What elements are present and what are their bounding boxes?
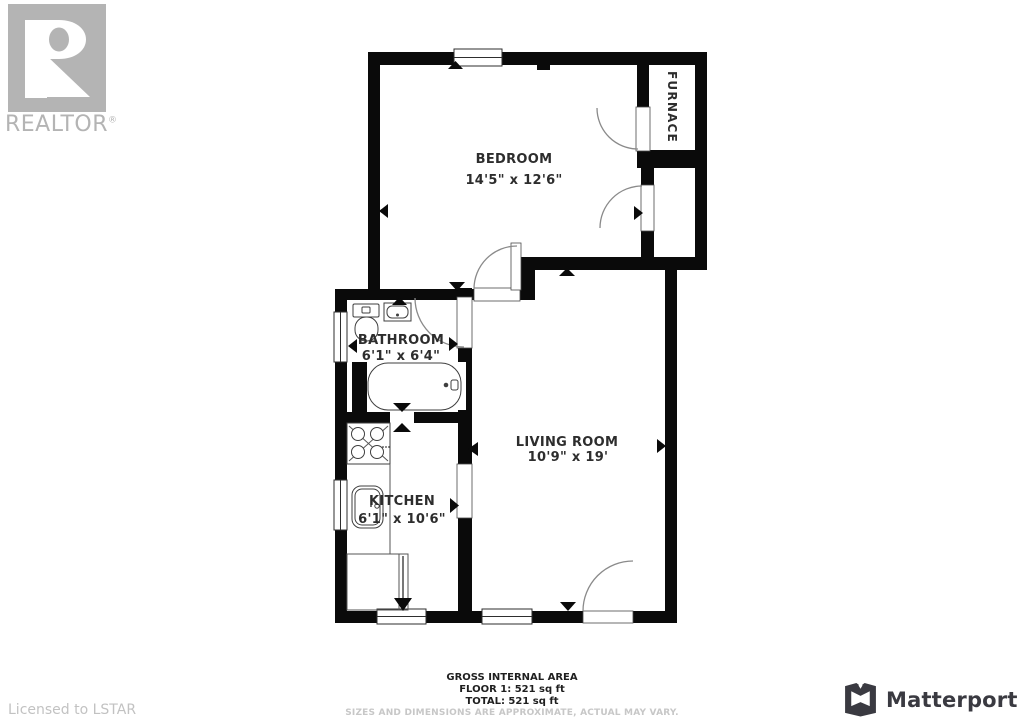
bathtub-icon	[368, 363, 461, 410]
matterport-logo: Matterport	[842, 682, 1018, 717]
kitchen-bottom-window	[377, 609, 426, 624]
bathroom-sink-icon	[384, 303, 411, 321]
stove-icon	[347, 423, 390, 464]
kitchen-opening	[457, 464, 472, 518]
bedroom-label: BEDROOM	[476, 152, 553, 167]
living-room-dimensions: 10'9" x 19'	[528, 450, 609, 465]
bathroom-dimensions: 6'1" x 6'4"	[362, 349, 440, 364]
entry-door	[583, 561, 633, 623]
matterport-text: Matterport	[886, 688, 1018, 712]
bedroom-door	[474, 243, 521, 301]
kitchen-side-window	[334, 480, 347, 530]
registered-mark: ®	[108, 116, 118, 126]
closet-door	[600, 185, 654, 231]
licensed-to-text: Licensed to LSTAR	[8, 702, 136, 718]
matterport-icon	[842, 682, 879, 717]
kitchen-label: KITCHEN	[369, 494, 435, 509]
bedroom-dimensions: 14'5" x 12'6"	[465, 173, 562, 188]
living-room-label: LIVING ROOM	[516, 435, 618, 450]
kitchen-dimensions: 6'1" x 10'6"	[358, 512, 446, 527]
kitchen-counter	[347, 464, 412, 611]
bathroom-label: BATHROOM	[358, 333, 444, 348]
floorplan-page: BEDROOM 14'5" x 12'6" BATHROOM 6'1" x 6'…	[0, 0, 1024, 723]
bathroom-window	[334, 312, 347, 362]
living-room-window	[482, 609, 532, 624]
floorplan-svg: BEDROOM 14'5" x 12'6" BATHROOM 6'1" x 6'…	[0, 0, 1024, 723]
furnace-door	[597, 107, 650, 151]
bedroom-window	[454, 49, 502, 66]
realtor-logo-text: REALTOR®	[5, 112, 118, 137]
furnace-label: FURNACE	[665, 71, 679, 143]
realtor-logo-icon	[8, 4, 106, 112]
floorplan: BEDROOM 14'5" x 12'6" BATHROOM 6'1" x 6'…	[334, 49, 707, 624]
